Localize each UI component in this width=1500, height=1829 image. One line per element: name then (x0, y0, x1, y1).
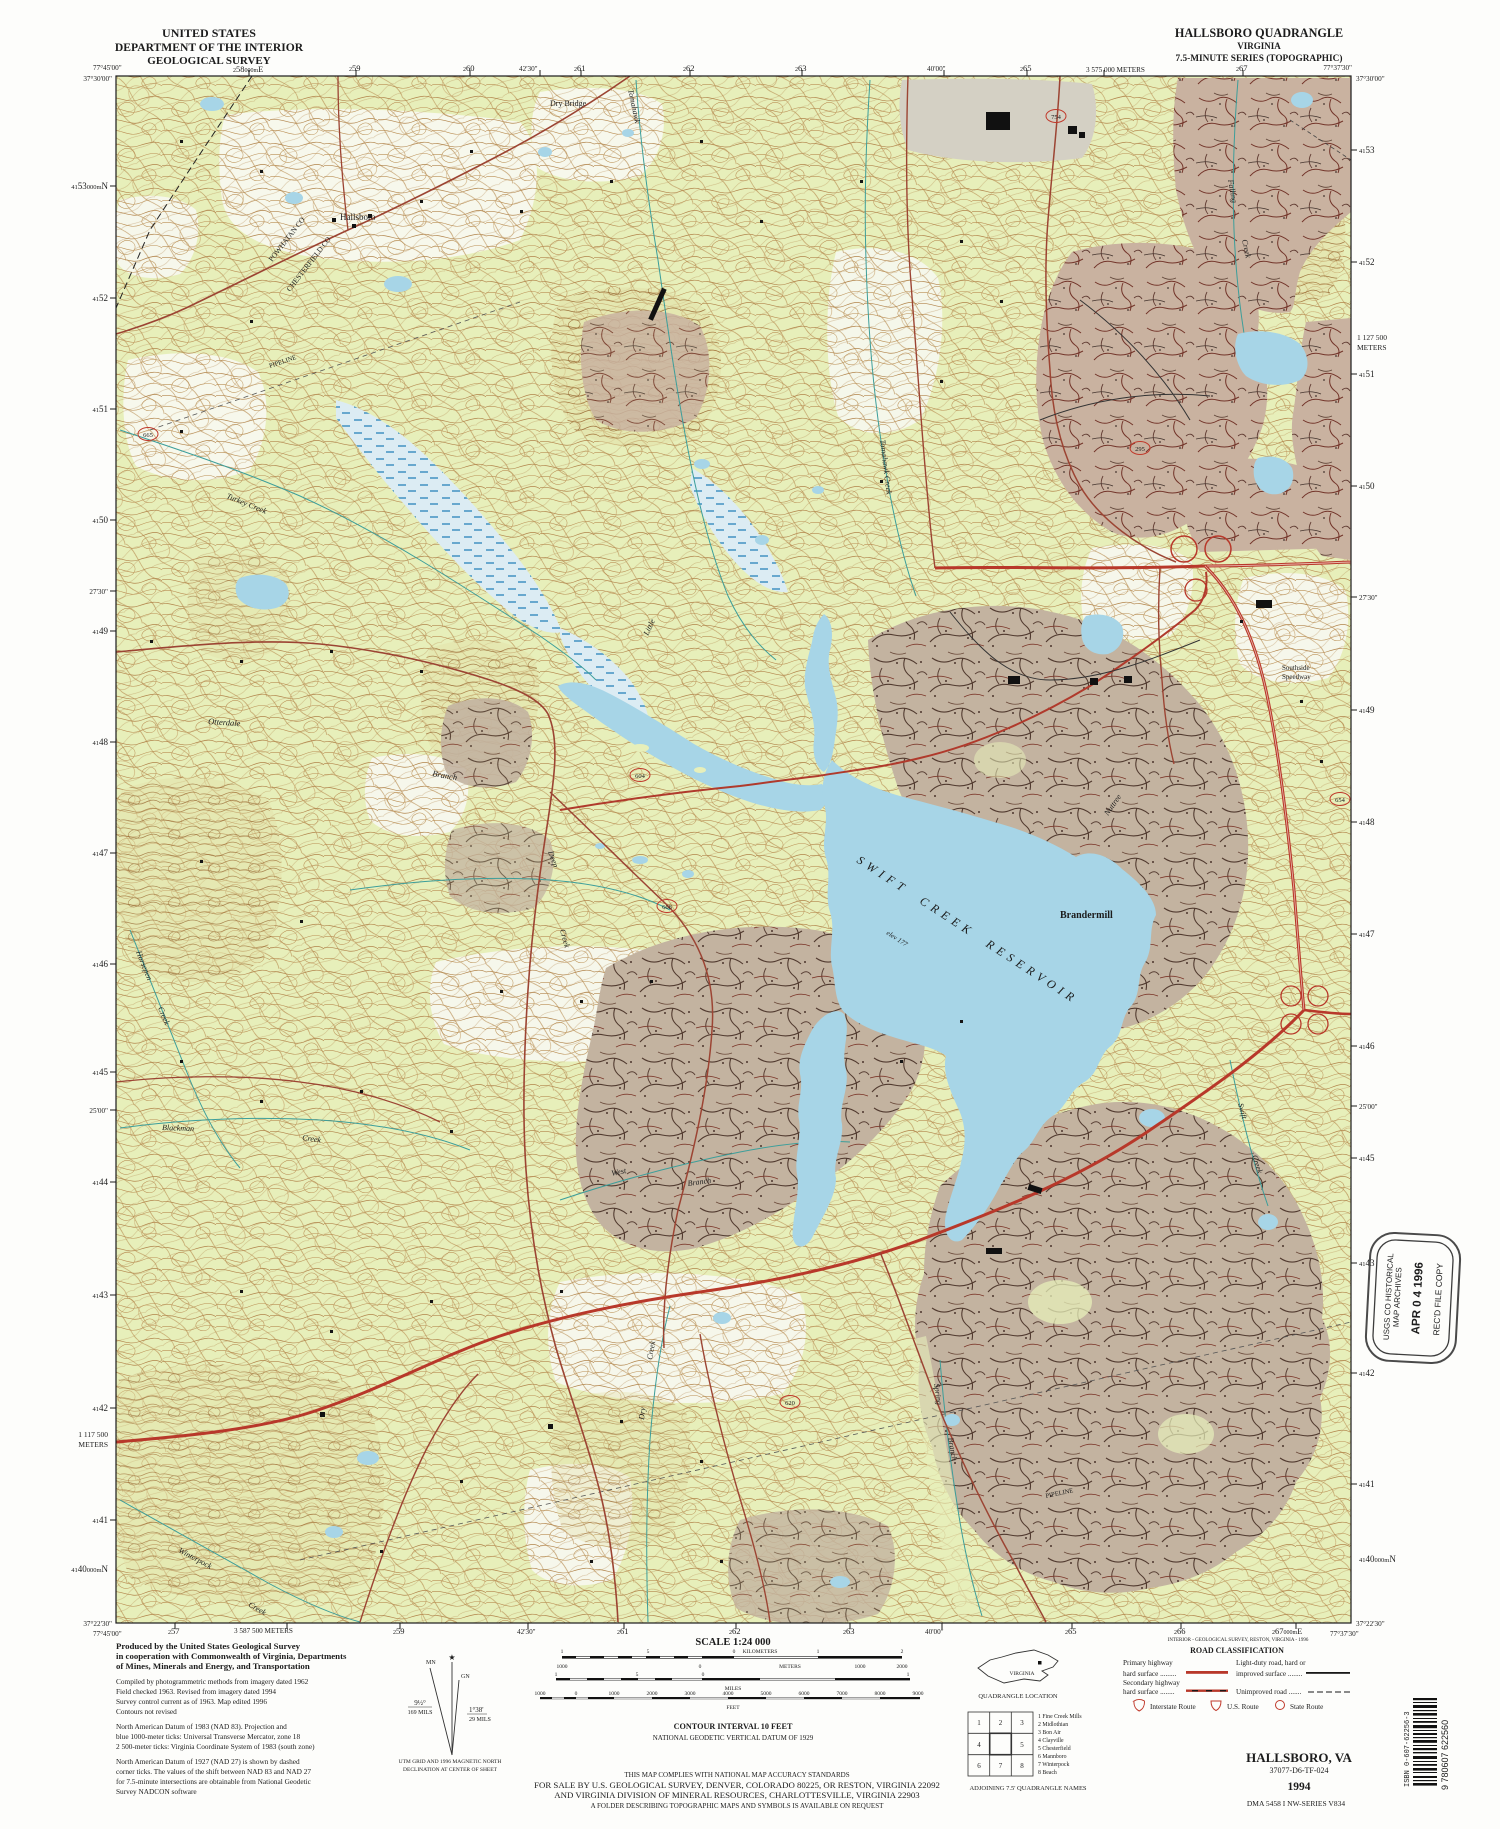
svg-text:169 MILS: 169 MILS (408, 1710, 433, 1716)
svg-text:4151: 4151 (1359, 369, 1375, 379)
svg-text:77°45'00": 77°45'00" (93, 64, 122, 72)
svg-text:3 587 500 METERS: 3 587 500 METERS (234, 1627, 293, 1635)
svg-text:Dry: Dry (637, 1406, 647, 1421)
svg-text:259: 259 (393, 1626, 405, 1636)
svg-text:0: 0 (702, 1672, 705, 1678)
svg-text:VIRGINIA: VIRGINIA (1237, 41, 1281, 51)
svg-text:3000: 3000 (685, 1691, 696, 1697)
svg-text:4152: 4152 (1359, 257, 1375, 267)
svg-text:262: 262 (729, 1626, 741, 1636)
svg-text:4141: 4141 (93, 1515, 109, 1525)
svg-text:5000: 5000 (761, 1691, 772, 1697)
svg-text:0: 0 (575, 1691, 578, 1697)
svg-text:1: 1 (555, 1672, 558, 1678)
svg-text:4149: 4149 (1359, 705, 1375, 715)
svg-text:Interstate Route: Interstate Route (1150, 1703, 1196, 1711)
svg-text:State Route: State Route (1290, 1703, 1323, 1711)
svg-text:INTERIOR - GEOLOGICAL SURVEY,: INTERIOR - GEOLOGICAL SURVEY, RESTON, VI… (1168, 1638, 1309, 1643)
svg-text:Dry Bridge: Dry Bridge (550, 99, 587, 108)
svg-text:4142: 4142 (93, 1403, 109, 1413)
svg-text:37°30'00": 37°30'00" (1356, 75, 1385, 83)
svg-text:25'00": 25'00" (89, 1107, 108, 1115)
svg-text:1: 1 (561, 1649, 564, 1655)
svg-text:620: 620 (785, 1400, 795, 1407)
svg-text:UNITED STATES: UNITED STATES (162, 26, 256, 40)
svg-text:0: 0 (699, 1664, 702, 1670)
svg-text:Unimproved road .......: Unimproved road ....... (1236, 1688, 1301, 1696)
svg-text:5: 5 (1020, 1741, 1024, 1749)
svg-text:HALLSBORO QUADRANGLE: HALLSBORO QUADRANGLE (1175, 26, 1343, 40)
svg-text:265: 265 (1020, 63, 1032, 73)
svg-text:THIS MAP COMPLIES WITH NATIONA: THIS MAP COMPLIES WITH NATIONAL MAP ACCU… (624, 1771, 849, 1779)
svg-text:267000mE: 267000mE (1272, 1626, 1302, 1636)
svg-text:MAP ARCHIVES: MAP ARCHIVES (1391, 1267, 1403, 1327)
svg-text:improved surface ........: improved surface ........ (1236, 1670, 1302, 1678)
svg-text:HALLSBORO, VA: HALLSBORO, VA (1246, 1750, 1352, 1765)
svg-text:9 780607 622560: 9 780607 622560 (1440, 1720, 1450, 1790)
svg-text:Secondary highway: Secondary highway (1123, 1679, 1180, 1687)
svg-text:4152: 4152 (93, 293, 109, 303)
svg-text:6000: 6000 (799, 1691, 810, 1697)
svg-text:3 Bon Air: 3 Bon Air (1038, 1730, 1061, 1736)
svg-text:77°45'00": 77°45'00" (93, 1630, 122, 1638)
svg-text:4144: 4144 (93, 1177, 109, 1187)
svg-text:266: 266 (1174, 1626, 1186, 1636)
svg-text:DMA 5458 I NW-SERIES V834: DMA 5458 I NW-SERIES V834 (1247, 1799, 1345, 1808)
svg-text:4153: 4153 (1359, 145, 1375, 155)
svg-text:Speedway: Speedway (1282, 673, 1311, 681)
svg-text:8: 8 (1020, 1762, 1024, 1770)
svg-text:Southside: Southside (1282, 664, 1310, 672)
svg-text:1: 1 (907, 1672, 910, 1678)
svg-text:295: 295 (1135, 446, 1145, 453)
svg-text:in cooperation with Commonweal: in cooperation with Commonwealth of Virg… (116, 1651, 347, 1661)
svg-text:27'30": 27'30" (89, 588, 108, 596)
svg-text:4147: 4147 (93, 848, 109, 858)
svg-text:665: 665 (143, 432, 153, 439)
svg-text:4150: 4150 (93, 515, 109, 525)
svg-text:ROAD CLASSIFICATION: ROAD CLASSIFICATION (1190, 1646, 1284, 1655)
svg-text:FOR SALE BY U.S. GEOLOGICAL SU: FOR SALE BY U.S. GEOLOGICAL SURVEY, DENV… (534, 1780, 940, 1790)
svg-text:North American Datum of 1983 (: North American Datum of 1983 (NAD 83). P… (116, 1722, 287, 1731)
svg-text:8000: 8000 (875, 1691, 886, 1697)
svg-text:7 Winterpock: 7 Winterpock (1038, 1762, 1069, 1768)
svg-text:Hallsboro: Hallsboro (340, 212, 376, 222)
svg-text:2 Midlothian: 2 Midlothian (1038, 1722, 1068, 1728)
svg-text:754: 754 (1051, 114, 1062, 121)
svg-text:REC'D FILE COPY: REC'D FILE COPY (1431, 1263, 1445, 1336)
svg-text:37077-D6-TF-024: 37077-D6-TF-024 (1269, 1766, 1328, 1775)
svg-text:7.5-MINUTE SERIES (TOPOGRAPHIC: 7.5-MINUTE SERIES (TOPOGRAPHIC) (1176, 53, 1343, 64)
svg-text:37°22'30": 37°22'30" (1356, 1620, 1385, 1628)
svg-text:Brandermill: Brandermill (1060, 910, 1113, 921)
svg-text:hard surface ........: hard surface ........ (1123, 1688, 1175, 1696)
svg-text:40'00": 40'00" (927, 65, 946, 73)
svg-text:8 Beach: 8 Beach (1038, 1770, 1057, 1776)
svg-text:37°22'30": 37°22'30" (83, 1620, 112, 1628)
svg-text:U.S. Route: U.S. Route (1227, 1703, 1259, 1711)
svg-text:corner ticks. The values of t: corner ticks. The values of the shift be… (116, 1767, 311, 1776)
svg-text:654: 654 (1335, 797, 1346, 804)
svg-text:1994: 1994 (1288, 1781, 1311, 1793)
svg-text:668: 668 (662, 904, 672, 911)
svg-text:Compiled by photogrammetric me: Compiled by photogrammetric methods from… (116, 1677, 309, 1686)
svg-text:265: 265 (1065, 1626, 1077, 1636)
svg-text:1: 1 (817, 1649, 820, 1655)
svg-text:1000: 1000 (855, 1664, 866, 1670)
svg-text:4148: 4148 (93, 737, 109, 747)
svg-text:4151: 4151 (93, 404, 109, 414)
svg-text:5: 5 (647, 1649, 650, 1655)
svg-text:7000: 7000 (837, 1691, 848, 1697)
svg-text:5: 5 (636, 1672, 639, 1678)
svg-text:NATIONAL GEODETIC VERTICAL DAT: NATIONAL GEODETIC VERTICAL DATUM OF 1929 (653, 1734, 814, 1742)
svg-text:2: 2 (999, 1719, 1003, 1727)
svg-text:2 500-meter ticks: Virginia Co: 2 500-meter ticks: Virginia Coordinate S… (116, 1742, 315, 1751)
svg-text:7: 7 (999, 1762, 1003, 1770)
svg-text:1°38': 1°38' (469, 1706, 484, 1714)
svg-text:of Mines, Minerals and Energy,: of Mines, Minerals and Energy, and Trans… (116, 1661, 310, 1671)
svg-text:SCALE 1:24 000: SCALE 1:24 000 (695, 1637, 770, 1648)
svg-text:2000: 2000 (897, 1664, 908, 1670)
svg-text:42'30": 42'30" (519, 65, 538, 73)
svg-text:6 Mannboro: 6 Mannboro (1038, 1754, 1067, 1760)
svg-text:0: 0 (733, 1649, 736, 1655)
svg-text:604: 604 (635, 773, 646, 780)
svg-text:VIRGINIA: VIRGINIA (1009, 1671, 1034, 1677)
svg-text:AND VIRGINIA DIVISION OF MINER: AND VIRGINIA DIVISION OF MINERAL RESOURC… (554, 1790, 920, 1800)
svg-text:77°37'30": 77°37'30" (1323, 64, 1352, 72)
svg-text:42'30": 42'30" (517, 1628, 536, 1636)
svg-text:GEOLOGICAL SURVEY: GEOLOGICAL SURVEY (147, 55, 270, 67)
svg-text:9000: 9000 (913, 1691, 924, 1697)
svg-text:METERS: METERS (78, 1440, 108, 1449)
svg-text:1 Fine Creek Mills: 1 Fine Creek Mills (1038, 1714, 1082, 1720)
svg-text:ADJOINING 7.5' QUADRANGLE NAME: ADJOINING 7.5' QUADRANGLE NAMES (969, 1785, 1086, 1792)
svg-text:4153000mN: 4153000mN (71, 181, 108, 191)
svg-text:Blackman: Blackman (162, 1123, 194, 1133)
svg-text:4146: 4146 (1359, 1041, 1375, 1051)
svg-text:Survey NADCON software: Survey NADCON software (116, 1787, 197, 1796)
svg-text:4 Clayville: 4 Clayville (1038, 1738, 1064, 1744)
svg-text:ISBN 0-607-62256-3: ISBN 0-607-62256-3 (1404, 1711, 1412, 1787)
svg-text:40'00": 40'00" (925, 1628, 944, 1636)
svg-text:hard surface .........: hard surface ......... (1123, 1670, 1176, 1678)
svg-text:29 MILS: 29 MILS (469, 1717, 491, 1723)
svg-text:1000: 1000 (609, 1691, 620, 1697)
svg-text:★: ★ (448, 1653, 455, 1662)
svg-text:1 127 500: 1 127 500 (1357, 333, 1387, 342)
svg-text:Produced by the United States: Produced by the United States Geological… (116, 1641, 301, 1651)
svg-text:4143: 4143 (93, 1290, 109, 1300)
svg-text:1000: 1000 (557, 1664, 568, 1670)
svg-text:UTM GRID AND 1996 MAGNETIC NOR: UTM GRID AND 1996 MAGNETIC NORTH (399, 1759, 502, 1765)
svg-text:4: 4 (977, 1741, 981, 1749)
svg-text:263: 263 (795, 63, 807, 73)
svg-text:3 575 000 METERS: 3 575 000 METERS (1086, 66, 1145, 74)
svg-text:North American Datum of 1927 (: North American Datum of 1927 (NAD 27) is… (116, 1757, 300, 1766)
svg-text:261: 261 (574, 63, 586, 73)
svg-text:A FOLDER DESCRIBING TOPOGRAPHI: A FOLDER DESCRIBING TOPOGRAPHIC MAPS AND… (591, 1802, 884, 1810)
svg-text:4142: 4142 (1359, 1368, 1375, 1378)
svg-text:6: 6 (977, 1762, 981, 1770)
svg-text:4143: 4143 (1359, 1258, 1375, 1268)
svg-text:GN: GN (461, 1674, 470, 1680)
svg-text:4140000mN: 4140000mN (71, 1564, 108, 1574)
svg-text:blue 1000-meter ticks: Univers: blue 1000-meter ticks: Universal Transve… (116, 1732, 300, 1741)
svg-text:2000: 2000 (647, 1691, 658, 1697)
svg-text:25'00": 25'00" (1359, 1103, 1378, 1111)
svg-text:259: 259 (349, 63, 361, 73)
svg-text:FEET: FEET (726, 1705, 740, 1711)
svg-text:4145: 4145 (1359, 1153, 1375, 1163)
svg-text:Survey control current as of 1: Survey control current as of 1963. Map e… (116, 1697, 267, 1706)
svg-text:263: 263 (843, 1626, 855, 1636)
svg-text:4147: 4147 (1359, 929, 1375, 939)
svg-text:1 117 500: 1 117 500 (78, 1430, 108, 1439)
svg-text:4150: 4150 (1359, 481, 1375, 491)
svg-text:CONTOUR INTERVAL 10 FEET: CONTOUR INTERVAL 10 FEET (674, 1722, 793, 1731)
svg-text:1: 1 (977, 1719, 981, 1727)
svg-text:for 7.5-minute intersections a: for 7.5-minute intersections are obtaina… (116, 1777, 312, 1786)
svg-text:Contours not revised: Contours not revised (116, 1707, 177, 1716)
svg-text:1000: 1000 (535, 1691, 546, 1697)
svg-text:METERS: METERS (779, 1664, 801, 1670)
svg-text:Field checked 1963. Revised f: Field checked 1963. Revised from imagery… (116, 1687, 276, 1696)
svg-text:261: 261 (617, 1626, 629, 1636)
svg-text:APR 0 4 1996: APR 0 4 1996 (1410, 1262, 1426, 1335)
svg-text:4149: 4149 (93, 626, 109, 636)
svg-text:DEPARTMENT OF THE INTERIOR: DEPARTMENT OF THE INTERIOR (115, 41, 304, 54)
svg-text:METERS: METERS (1357, 343, 1387, 352)
svg-text:3: 3 (1020, 1719, 1024, 1727)
svg-text:262: 262 (683, 63, 695, 73)
svg-text:4000: 4000 (723, 1691, 734, 1697)
svg-text:MN: MN (426, 1660, 436, 1666)
svg-text:Primary highway: Primary highway (1123, 1659, 1173, 1667)
svg-text:9½°: 9½° (414, 1699, 426, 1707)
svg-text:DECLINATION AT CENTER OF SHEET: DECLINATION AT CENTER OF SHEET (403, 1767, 498, 1773)
svg-text:4141: 4141 (1359, 1479, 1375, 1489)
svg-text:Light-duty road, hard or: Light-duty road, hard or (1236, 1659, 1306, 1667)
svg-text:5 Chesterfield: 5 Chesterfield (1038, 1745, 1071, 1752)
svg-text:2: 2 (901, 1649, 904, 1655)
svg-text:QUADRANGLE LOCATION: QUADRANGLE LOCATION (978, 1693, 1058, 1700)
svg-text:77°37'30": 77°37'30" (1330, 1630, 1359, 1638)
svg-text:260: 260 (463, 63, 475, 73)
svg-text:27'30": 27'30" (1359, 594, 1378, 602)
svg-text:267: 267 (1236, 63, 1248, 73)
svg-text:37°30'00": 37°30'00" (83, 75, 112, 83)
svg-text:4146: 4146 (93, 959, 109, 969)
svg-text:4148: 4148 (1359, 817, 1375, 827)
svg-text:KILOMETERS: KILOMETERS (743, 1649, 778, 1655)
svg-text:4140000mN: 4140000mN (1359, 1554, 1396, 1564)
svg-text:257: 257 (168, 1626, 180, 1636)
svg-text:4145: 4145 (93, 1067, 109, 1077)
